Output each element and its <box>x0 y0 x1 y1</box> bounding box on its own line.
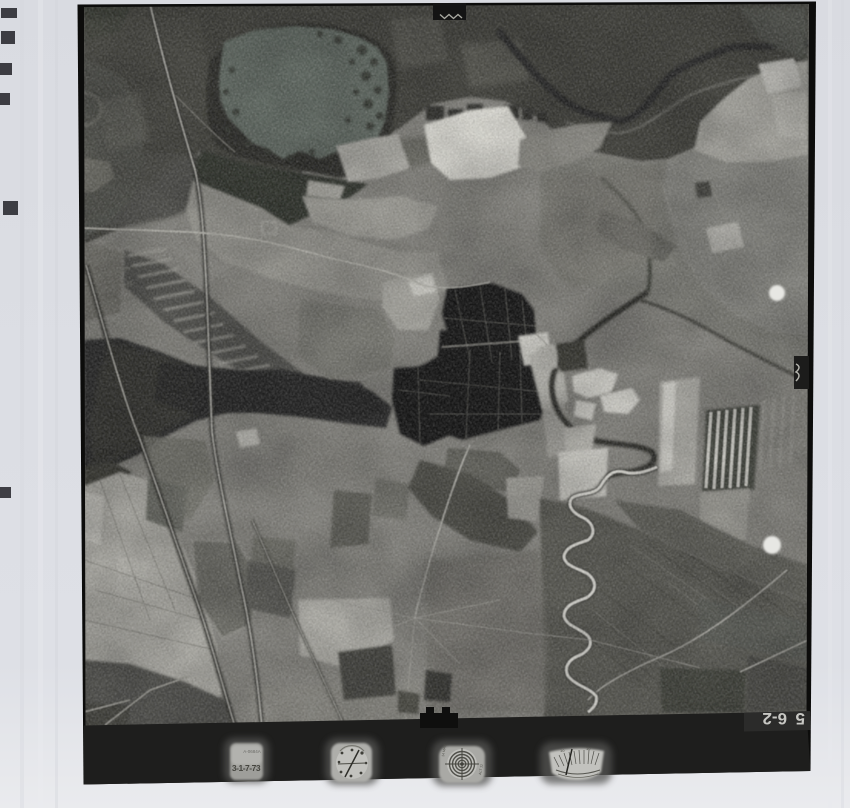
svg-text:5: 5 <box>796 709 805 728</box>
svg-text:10: 10 <box>586 746 591 751</box>
svg-text:3-1-7-73: 3-1-7-73 <box>232 763 261 773</box>
svg-text:10: 10 <box>560 748 565 753</box>
svg-text:A-0684A: A-0684A <box>243 749 261 754</box>
svg-text:6-2: 6-2 <box>762 709 787 728</box>
